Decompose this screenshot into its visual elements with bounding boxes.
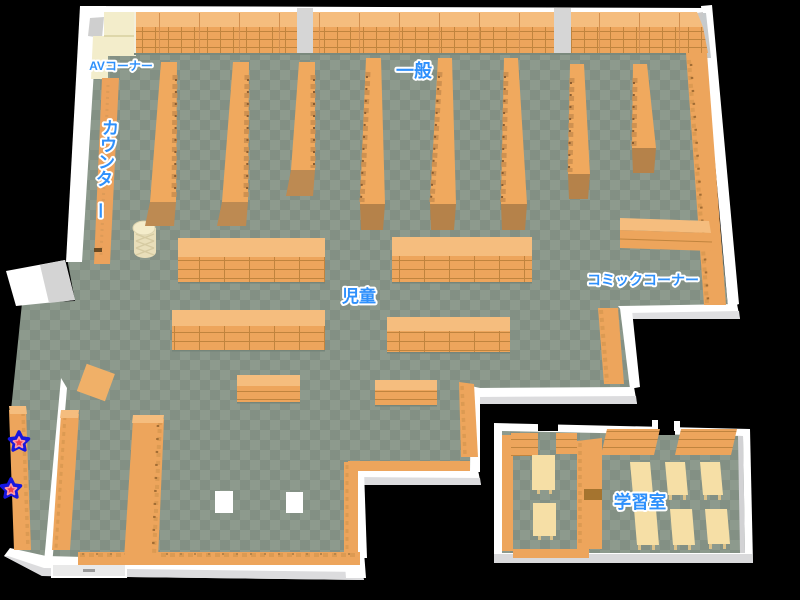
svg-text:一般: 一般 xyxy=(396,60,432,81)
svg-text:児童: 児童 xyxy=(341,286,376,306)
svg-text:コミックコーナー: コミックコーナー xyxy=(587,272,699,288)
svg-text:学習室: 学習室 xyxy=(614,492,667,512)
svg-text:AVコーナー: AVコーナー xyxy=(89,59,153,73)
